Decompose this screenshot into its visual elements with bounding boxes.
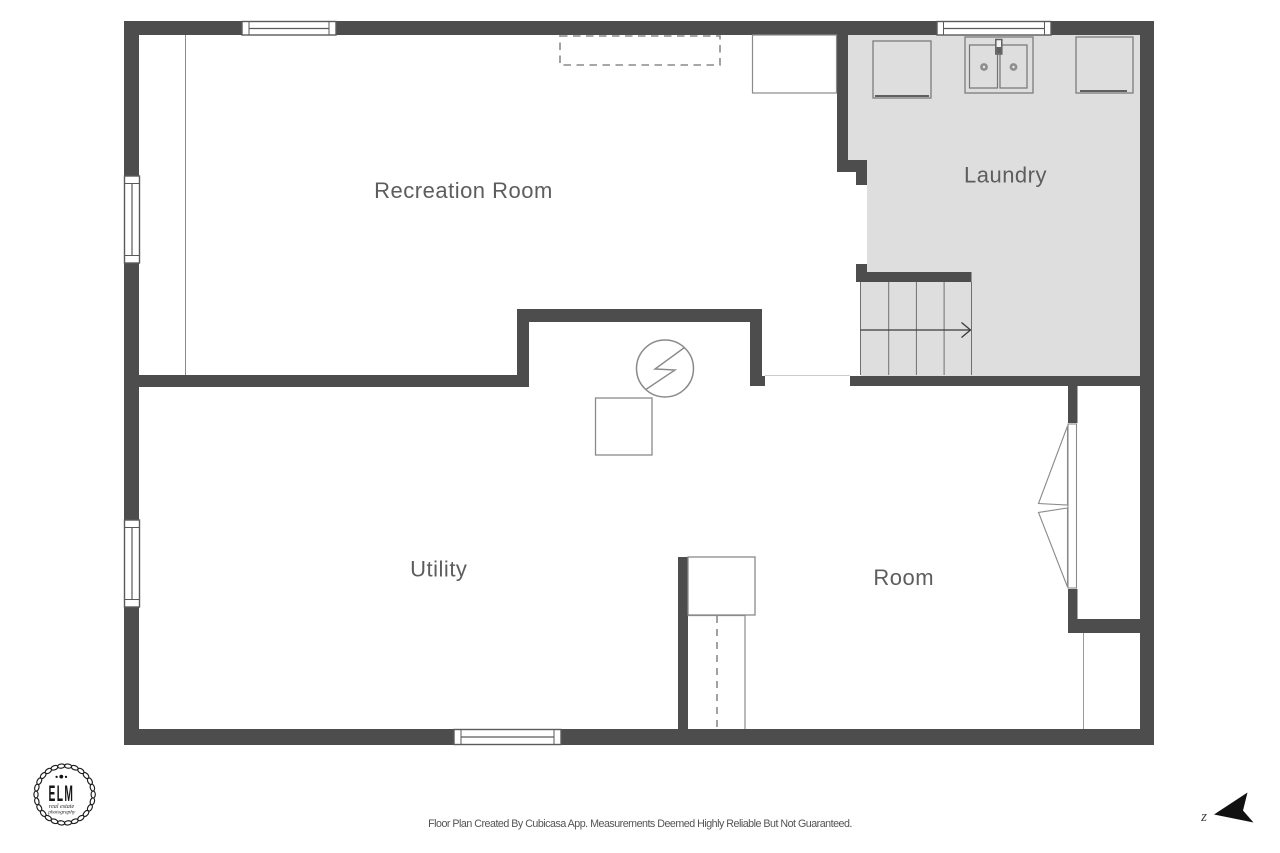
svg-text:Laundry: Laundry xyxy=(964,163,1047,188)
svg-text:Utility: Utility xyxy=(410,557,467,582)
svg-text:photography: photography xyxy=(47,809,76,815)
svg-text:ELM: ELM xyxy=(48,782,74,806)
svg-text:Recreation Room: Recreation Room xyxy=(374,178,553,203)
svg-text:Floor Plan Created By Cubicasa: Floor Plan Created By Cubicasa App. Meas… xyxy=(428,818,852,830)
svg-text:Room: Room xyxy=(873,565,934,590)
svg-text:z: z xyxy=(1200,809,1207,825)
